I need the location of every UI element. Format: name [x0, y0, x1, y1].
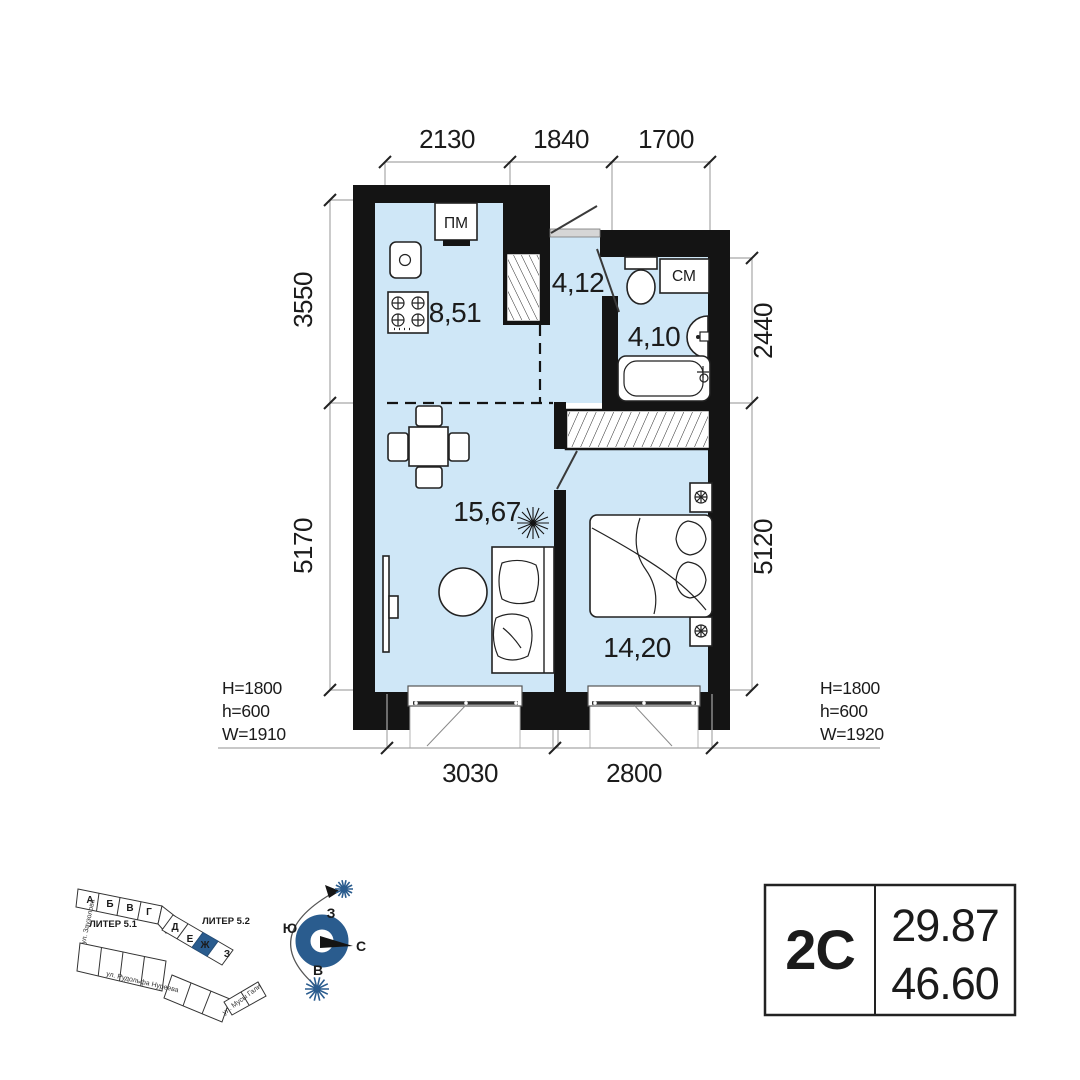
- liter-2-label: ЛИТЕР 5.2: [202, 916, 250, 927]
- apartment-type: 2С: [785, 918, 855, 981]
- dim-left-2: 5170: [288, 518, 318, 574]
- dim-top-1: 2130: [419, 124, 475, 154]
- dishwasher-front: [443, 240, 470, 246]
- chair-bottom: [416, 467, 442, 488]
- compass-south: Ю: [283, 920, 297, 936]
- block-z: З: [224, 949, 230, 960]
- hall-area-label: 4,12: [552, 267, 605, 298]
- compass-north: С: [356, 938, 366, 954]
- dishwasher-label: ПМ: [444, 215, 468, 232]
- dim-right-1: 2440: [748, 303, 778, 359]
- toilet-bowl: [627, 270, 655, 304]
- window-left-W: W=1910: [222, 724, 286, 744]
- window-right-recess: [590, 706, 698, 748]
- window-right-pane-dot: [691, 701, 695, 705]
- window-left-recess: [410, 706, 520, 748]
- kitchen-nook-floor: [503, 325, 550, 403]
- bath-sink-tap: [700, 332, 709, 341]
- compass-west: З: [327, 905, 336, 921]
- compass-east: В: [313, 962, 323, 978]
- dim-top-3: 1700: [638, 124, 694, 154]
- block-e: Е: [187, 934, 194, 945]
- window-right-pane-dot: [593, 701, 597, 705]
- bath-sink-drain: [696, 335, 700, 339]
- window-left-h: h=600: [222, 701, 270, 721]
- dim-bottom-2: 2800: [606, 758, 662, 788]
- window-right-h: h=600: [820, 701, 868, 721]
- summary-box: 2С 29.87 46.60: [765, 885, 1015, 1015]
- kitchen-sink: [390, 242, 421, 278]
- window-right-pane-dot: [642, 701, 646, 705]
- liter-1-label: ЛИТЕР 5.1: [89, 919, 138, 930]
- toilet-tank: [625, 257, 657, 269]
- wall-wardrobe-stub: [554, 402, 566, 449]
- window-left-H: H=1800: [222, 678, 283, 698]
- kitchen-area-label: 8,51: [429, 297, 482, 328]
- window-right-H: H=1800: [820, 678, 881, 698]
- chair-top: [416, 406, 442, 426]
- coffee-table: [439, 568, 487, 616]
- block-g: Г: [146, 907, 152, 918]
- floor-plan-canvas: ПМ СМ: [0, 0, 1080, 1080]
- wall-living-bedroom: [554, 490, 566, 692]
- bedroom-wardrobe-hatch: [568, 412, 708, 447]
- wall-bottom-2: [520, 692, 592, 730]
- bedroom-area-label: 14,20: [603, 632, 671, 663]
- dim-bottom-1: 3030: [442, 758, 498, 788]
- block-b: Б: [106, 899, 113, 910]
- dim-top-2: 1840: [533, 124, 589, 154]
- chair-left: [388, 433, 408, 461]
- hall-closet-hatch: [508, 255, 539, 320]
- chair-right: [449, 433, 469, 461]
- sun-icon-bottom: [305, 977, 329, 1000]
- bed: [590, 515, 712, 617]
- living-area-label: 15,67: [453, 496, 521, 527]
- hall-floor: [550, 236, 602, 403]
- site-building-row4: [164, 975, 230, 1022]
- window-left-pane-dot: [414, 701, 418, 705]
- tv-stand: [389, 596, 398, 618]
- bath-area-label: 4,10: [628, 321, 681, 352]
- compass: З Ю С В: [283, 880, 366, 1001]
- block-d: Д: [171, 922, 178, 933]
- dining-table: [409, 427, 448, 466]
- dim-right-2: 5120: [748, 519, 778, 575]
- window-left-pane-dot: [464, 701, 468, 705]
- wall-bottom-1: [353, 692, 410, 730]
- wall-hall-bath: [602, 296, 618, 402]
- dim-left-1: 3550: [288, 272, 318, 328]
- nightstand-bottom-lamp: [695, 625, 707, 637]
- living-area-value: 29.87: [891, 900, 999, 951]
- sun-icon-top: [335, 880, 353, 898]
- floor-plan-page: ПМ СМ: [0, 0, 1080, 1080]
- window-left-pane-dot: [514, 701, 518, 705]
- wall-right: [708, 230, 730, 730]
- block-v: В: [126, 903, 133, 914]
- total-area-value: 46.60: [891, 958, 999, 1009]
- window-right-W: W=1920: [820, 724, 884, 744]
- tv-panel: [383, 556, 389, 652]
- wall-left: [353, 185, 375, 730]
- block-zh: Ж: [199, 940, 210, 951]
- washer-label: СМ: [672, 268, 696, 285]
- nightstand-top-lamp: [695, 491, 707, 503]
- wall-bottom-3: [697, 692, 730, 730]
- bath-door-gap: [602, 255, 618, 301]
